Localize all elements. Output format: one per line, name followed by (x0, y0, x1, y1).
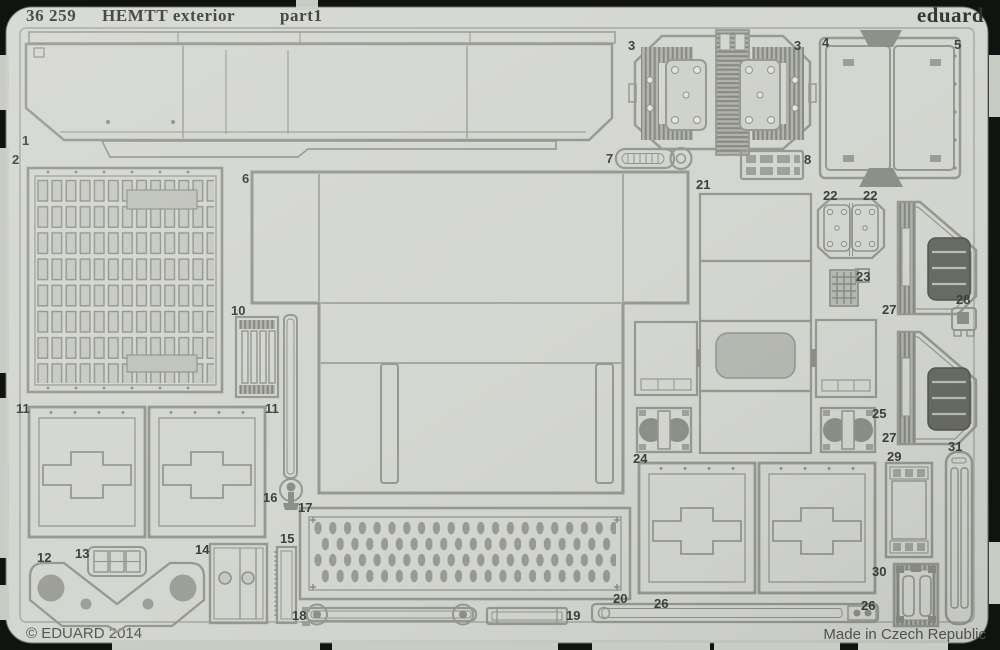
part-label-30: 30 (872, 564, 886, 579)
part-label-5: 5 (954, 37, 961, 52)
part-2-grille (28, 168, 222, 392)
part-label-22a: 22 (823, 188, 837, 203)
part-label-24: 24 (633, 451, 648, 466)
part-label-17: 17 (298, 500, 312, 515)
part-label-28: 28 (956, 292, 970, 307)
part-label-6: 6 (242, 171, 249, 186)
part-label-3a: 3 (628, 38, 635, 53)
part-label-31: 31 (948, 439, 962, 454)
part-label-2: 2 (12, 152, 19, 167)
part-label-27a: 27 (882, 302, 896, 317)
part-label-11a: 11 (16, 401, 30, 416)
part-label-19: 19 (566, 608, 580, 623)
part-label-1: 1 (22, 133, 29, 148)
part-label-12: 12 (37, 550, 51, 565)
part-label-14: 14 (195, 542, 210, 557)
part-label-8: 8 (804, 152, 811, 167)
part-25-spool (821, 408, 875, 452)
part-label-27b: 27 (882, 430, 896, 445)
part-label-16: 16 (263, 490, 277, 505)
part-label-22b: 22 (863, 188, 877, 203)
kit-title: HEMTT exterior (102, 6, 235, 25)
fret-drawing: 36 259HEMTT exteriorpart1 eduard © EDUAR… (0, 0, 1000, 650)
made-in-text: Made in Czech Republic (823, 626, 986, 643)
brand-logotype: eduard (917, 3, 984, 27)
part-label-13: 13 (75, 546, 89, 561)
photoetch-fret-scan: 36 259HEMTT exteriorpart1 eduard © EDUAR… (0, 0, 1000, 650)
part-label-21: 21 (696, 177, 710, 192)
catalog-number: 36 259 (26, 6, 76, 25)
part-label-26a: 26 (654, 596, 668, 611)
part-label-3b: 3 (794, 38, 801, 53)
part-13-buckles (88, 547, 146, 576)
part-designation: part1 (280, 6, 323, 25)
part-label-4: 4 (822, 35, 830, 50)
part-label-25: 25 (872, 406, 886, 421)
part-label-29: 29 (887, 449, 901, 464)
part-label-23: 23 (856, 269, 870, 284)
part-label-15: 15 (280, 531, 294, 546)
part-3-hinge-assembly (629, 30, 816, 155)
part-24-spool (637, 408, 691, 452)
part-30-latch-plate (894, 564, 938, 626)
part-label-11b: 11 (265, 401, 279, 416)
part-label-18: 18 (292, 608, 306, 623)
part-label-20: 20 (613, 591, 627, 606)
part-label-10: 10 (231, 303, 245, 318)
part-label-26b: 26 (861, 598, 875, 613)
part-label-7: 7 (606, 151, 613, 166)
